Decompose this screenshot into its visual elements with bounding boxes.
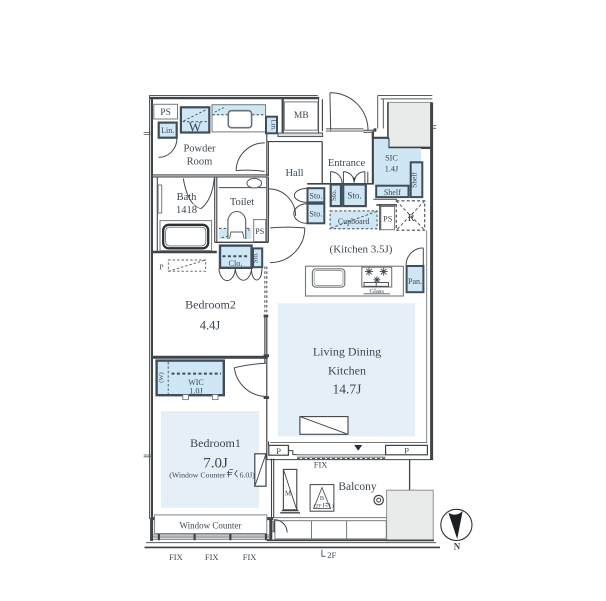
svg-text:FIX: FIX (205, 552, 219, 562)
svg-text:SIC: SIC (385, 153, 398, 162)
svg-text:N: N (454, 541, 461, 551)
svg-text:Bath: Bath (177, 192, 198, 203)
svg-text:Lin.: Lin. (161, 126, 174, 135)
svg-text:R: R (408, 213, 415, 224)
svg-text:1418: 1418 (176, 205, 197, 216)
svg-text:Sto.: Sto. (309, 210, 322, 219)
svg-text:Hall: Hall (285, 168, 303, 179)
svg-text:M: M (285, 491, 291, 498)
svg-text:Lin.: Lin. (270, 120, 277, 131)
svg-text:Entrance: Entrance (328, 158, 366, 169)
svg-text:P: P (159, 263, 163, 272)
svg-text:): ) (332, 503, 334, 510)
svg-text:1.0J: 1.0J (189, 386, 202, 395)
svg-text:P: P (276, 446, 281, 456)
svg-text:4.4J: 4.4J (200, 318, 221, 332)
svg-text:B: B (320, 495, 324, 502)
svg-text:(Window Counter: (Window Counter (169, 470, 226, 479)
svg-text:Balcony: Balcony (338, 481, 377, 493)
svg-text:Clo.: Clo. (229, 259, 243, 268)
svg-text:FIX: FIX (314, 460, 328, 470)
svg-text:Sto.: Sto. (330, 189, 338, 201)
svg-text:Shelf: Shelf (410, 172, 419, 188)
svg-text:Window Counter: Window Counter (180, 520, 242, 530)
svg-text:PS: PS (160, 108, 171, 118)
svg-text:6.0J): 6.0J) (240, 470, 256, 479)
svg-text:Shelf: Shelf (384, 188, 401, 197)
svg-text:Pan.: Pan. (408, 277, 422, 286)
svg-text:W: W (189, 119, 202, 134)
svg-text:MB: MB (294, 111, 309, 121)
svg-text:Sto.: Sto. (309, 191, 322, 200)
svg-text:(W): (W) (158, 372, 165, 382)
svg-text:FIX: FIX (243, 552, 257, 562)
svg-text:(2F: (2F (314, 503, 322, 510)
svg-text:P: P (404, 446, 409, 456)
svg-text:Glass: Glass (369, 288, 384, 295)
svg-text:Living Dining: Living Dining (313, 344, 381, 358)
svg-text:Bedroom1: Bedroom1 (190, 436, 241, 450)
svg-text:Sto.: Sto. (347, 191, 361, 201)
svg-text:7.0J: 7.0J (203, 455, 228, 471)
svg-text:1.4J: 1.4J (385, 164, 399, 173)
svg-text:PS: PS (255, 227, 265, 236)
svg-text:Sto.: Sto. (252, 252, 260, 263)
svg-text:14.7J: 14.7J (333, 381, 362, 396)
svg-text:Cupboard: Cupboard (338, 217, 370, 226)
svg-text:Powder: Powder (183, 144, 216, 155)
svg-text:2F: 2F (327, 550, 336, 560)
svg-text:Kitchen: Kitchen (328, 363, 366, 377)
svg-text:(Kitchen 3.5J): (Kitchen 3.5J) (330, 243, 393, 255)
svg-text:FIX: FIX (169, 552, 183, 562)
svg-text:Toilet: Toilet (230, 197, 254, 208)
svg-text:Bedroom2: Bedroom2 (185, 298, 236, 312)
svg-text:Room: Room (187, 157, 213, 168)
svg-text:PS: PS (383, 214, 393, 223)
